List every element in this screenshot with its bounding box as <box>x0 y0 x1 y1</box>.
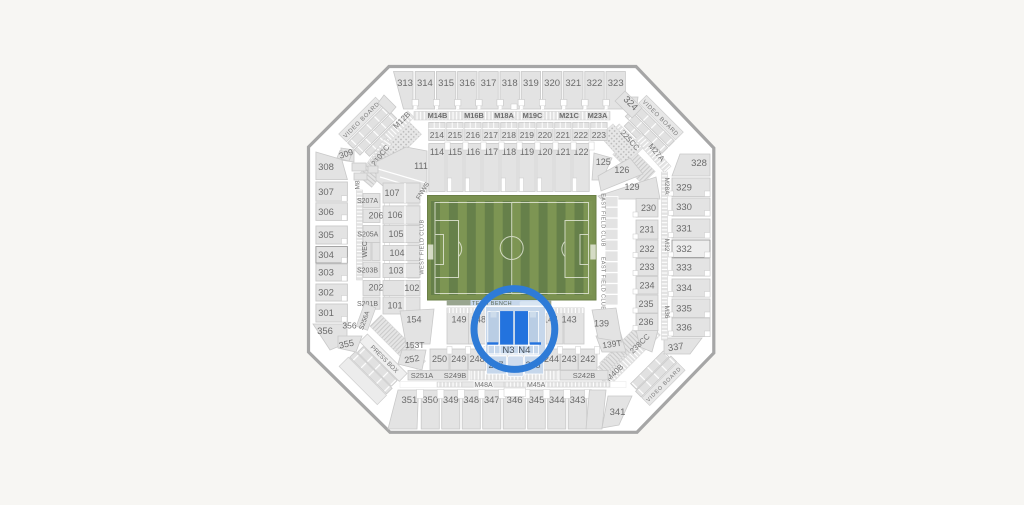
svg-text:337: 337 <box>667 341 684 354</box>
svg-text:351: 351 <box>401 395 417 406</box>
svg-text:WEST FIELD CLUB: WEST FIELD CLUB <box>420 219 426 274</box>
svg-text:143: 143 <box>562 315 577 325</box>
svg-text:344: 344 <box>549 395 565 406</box>
svg-text:218: 218 <box>502 130 516 140</box>
svg-text:345: 345 <box>529 395 545 406</box>
svg-text:322: 322 <box>587 78 603 89</box>
svg-text:336: 336 <box>676 322 692 333</box>
svg-text:335: 335 <box>676 303 692 314</box>
svg-text:317: 317 <box>481 78 497 89</box>
svg-text:125: 125 <box>596 157 611 167</box>
svg-text:318: 318 <box>502 78 518 89</box>
svg-text:149: 149 <box>451 315 466 325</box>
svg-text:WEC: WEC <box>362 241 369 257</box>
svg-text:S203B: S203B <box>357 267 378 274</box>
svg-text:330: 330 <box>676 202 692 213</box>
svg-text:243: 243 <box>562 354 577 364</box>
svg-text:316: 316 <box>459 78 475 89</box>
svg-text:232: 232 <box>639 244 654 254</box>
svg-text:102: 102 <box>404 283 419 293</box>
svg-text:249: 249 <box>451 354 466 364</box>
svg-text:104: 104 <box>389 248 404 258</box>
svg-text:332: 332 <box>676 244 692 255</box>
svg-text:M32: M32 <box>663 239 670 252</box>
svg-text:302: 302 <box>318 288 334 299</box>
svg-text:319: 319 <box>523 78 539 89</box>
svg-text:343: 343 <box>570 395 586 406</box>
svg-text:356: 356 <box>342 321 356 331</box>
svg-text:154: 154 <box>406 315 421 325</box>
svg-text:303: 303 <box>318 268 334 279</box>
svg-text:234: 234 <box>639 280 654 290</box>
svg-text:308: 308 <box>318 162 334 173</box>
svg-text:M14B: M14B <box>428 111 448 120</box>
svg-text:103: 103 <box>388 266 403 276</box>
svg-text:S207A: S207A <box>357 198 378 205</box>
svg-text:235: 235 <box>638 299 653 309</box>
svg-text:306: 306 <box>318 207 334 218</box>
svg-text:M8: M8 <box>355 180 362 189</box>
svg-text:S249B: S249B <box>444 371 467 380</box>
svg-text:323: 323 <box>608 78 624 89</box>
svg-text:216: 216 <box>466 130 480 140</box>
svg-text:221: 221 <box>556 130 570 140</box>
svg-text:EAST FIELD CLUB: EAST FIELD CLUB <box>600 257 606 311</box>
svg-text:304: 304 <box>318 250 334 261</box>
svg-text:334: 334 <box>676 283 692 294</box>
svg-text:214: 214 <box>430 130 444 140</box>
svg-text:321: 321 <box>565 78 581 89</box>
svg-text:307: 307 <box>318 187 334 198</box>
svg-text:106: 106 <box>387 210 402 220</box>
svg-text:231: 231 <box>639 225 654 235</box>
svg-text:N3: N3 <box>502 345 514 356</box>
svg-text:333: 333 <box>676 262 692 273</box>
svg-text:347: 347 <box>484 395 500 406</box>
svg-text:242: 242 <box>580 354 595 364</box>
svg-text:101: 101 <box>387 301 402 311</box>
svg-text:349: 349 <box>443 395 459 406</box>
svg-text:129: 129 <box>624 182 639 192</box>
svg-text:EAST FIELD CLUB: EAST FIELD CLUB <box>600 193 606 247</box>
svg-text:220: 220 <box>538 130 552 140</box>
svg-text:N4: N4 <box>518 345 530 356</box>
svg-text:M19C: M19C <box>523 111 543 120</box>
svg-text:328: 328 <box>691 158 707 169</box>
svg-text:M36: M36 <box>663 306 670 319</box>
svg-text:S251A: S251A <box>411 371 434 380</box>
svg-text:105: 105 <box>388 229 403 239</box>
svg-text:341: 341 <box>610 407 626 418</box>
svg-text:202: 202 <box>368 283 383 293</box>
svg-text:233: 233 <box>639 262 654 272</box>
svg-text:M21C: M21C <box>559 111 579 120</box>
svg-text:S205A: S205A <box>357 232 378 239</box>
svg-text:314: 314 <box>417 78 433 89</box>
svg-text:153T: 153T <box>405 340 424 350</box>
svg-text:313: 313 <box>397 78 413 89</box>
svg-text:217: 217 <box>484 130 498 140</box>
svg-text:305: 305 <box>318 230 334 241</box>
svg-text:236: 236 <box>638 317 653 327</box>
svg-text:329: 329 <box>676 182 692 193</box>
svg-text:M18A: M18A <box>494 111 514 120</box>
svg-text:139: 139 <box>594 319 609 329</box>
svg-text:206: 206 <box>368 210 383 220</box>
svg-text:M48A: M48A <box>474 382 493 389</box>
svg-text:M16B: M16B <box>464 111 484 120</box>
svg-text:222: 222 <box>574 130 588 140</box>
svg-text:331: 331 <box>676 224 692 235</box>
svg-text:320: 320 <box>544 78 560 89</box>
svg-text:114: 114 <box>430 147 444 157</box>
svg-text:215: 215 <box>448 130 462 140</box>
svg-text:230: 230 <box>641 203 656 213</box>
svg-text:126: 126 <box>614 165 629 175</box>
svg-text:S242B: S242B <box>573 371 596 380</box>
svg-text:356: 356 <box>317 326 333 337</box>
svg-text:219: 219 <box>520 130 534 140</box>
svg-text:301: 301 <box>318 308 334 319</box>
svg-text:107: 107 <box>384 188 399 198</box>
svg-text:350: 350 <box>422 395 438 406</box>
svg-text:223: 223 <box>592 130 606 140</box>
svg-text:250: 250 <box>432 354 447 364</box>
svg-text:M45A: M45A <box>527 382 546 389</box>
svg-text:111: 111 <box>414 161 428 171</box>
svg-text:M28A: M28A <box>663 178 670 196</box>
svg-text:348: 348 <box>463 395 479 406</box>
svg-text:315: 315 <box>438 78 454 89</box>
svg-text:M23A: M23A <box>588 111 608 120</box>
